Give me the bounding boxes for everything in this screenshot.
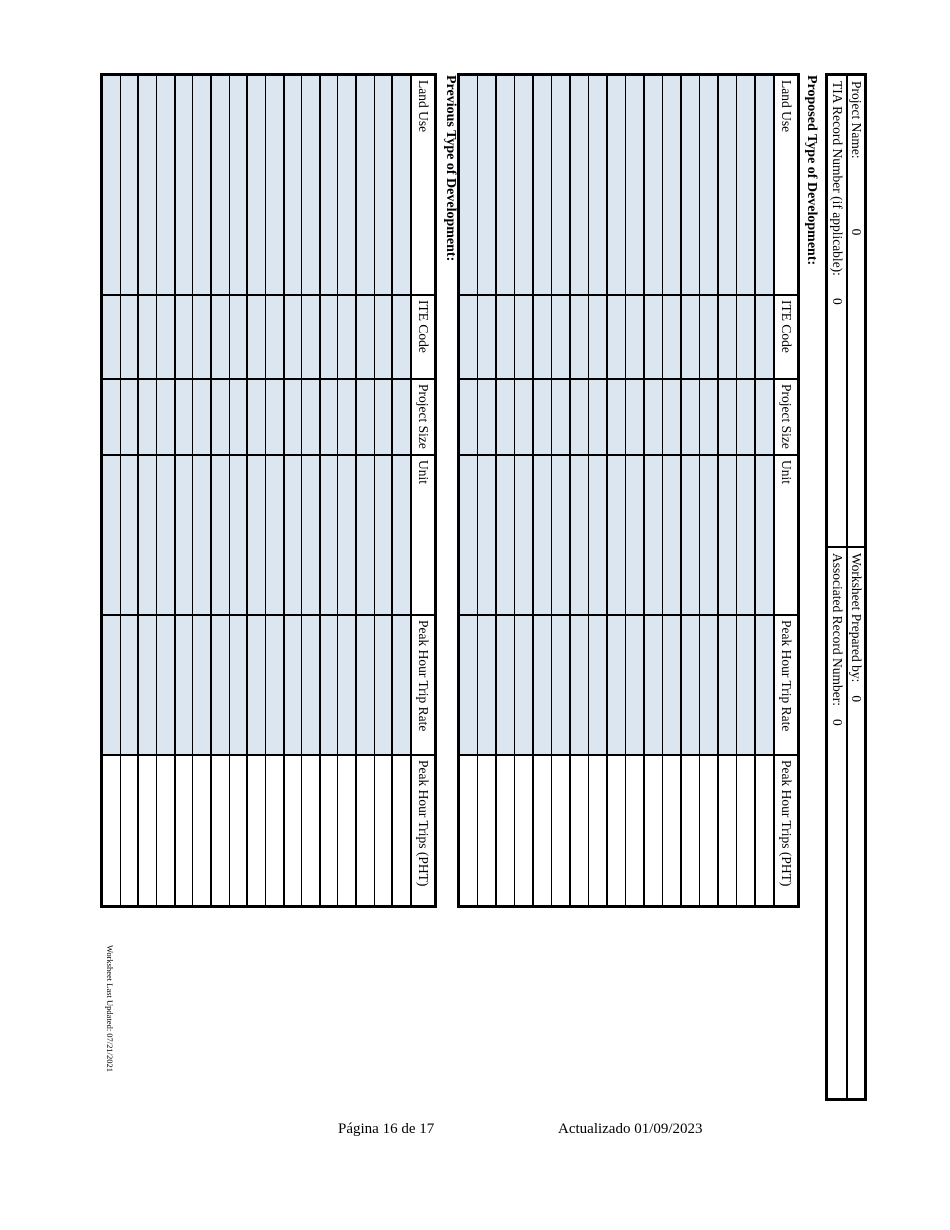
empty-data-cell (626, 380, 643, 456)
table-row (477, 76, 495, 905)
worksheet-prepared-by-label: Worksheet Prepared by: (848, 553, 864, 682)
empty-data-cell (515, 296, 532, 380)
empty-data-cell (478, 76, 495, 296)
table-row (192, 76, 210, 905)
empty-data-cell (534, 380, 551, 456)
empty-data-cell (497, 296, 514, 380)
empty-data-cell (157, 76, 174, 296)
empty-data-cell (608, 456, 625, 616)
empty-data-cell (121, 380, 138, 456)
empty-data-cell (230, 380, 247, 456)
column-header-project-size: Project Size (775, 380, 797, 456)
empty-data-cell (248, 456, 265, 616)
empty-data-cell (321, 76, 338, 296)
empty-data-cell (589, 616, 606, 756)
table-row (229, 76, 247, 905)
empty-data-cell (645, 296, 662, 380)
empty-data-cell (176, 756, 193, 905)
empty-data-cell (460, 616, 477, 756)
page-number-footer: Página 16 de 17 (338, 1121, 434, 1138)
empty-data-cell (212, 616, 229, 756)
empty-data-cell (700, 296, 717, 380)
empty-data-cell (157, 616, 174, 756)
empty-data-cell (663, 296, 680, 380)
empty-data-cell (103, 616, 120, 756)
empty-data-cell (756, 380, 773, 456)
empty-data-cell (478, 456, 495, 616)
empty-data-cell (571, 76, 588, 296)
empty-data-cell (756, 616, 773, 756)
empty-data-cell (121, 296, 138, 380)
table-row (174, 76, 193, 905)
empty-data-cell (230, 456, 247, 616)
empty-data-cell (193, 456, 210, 616)
empty-data-cell (103, 296, 120, 380)
empty-data-cell (212, 380, 229, 456)
empty-data-cell (589, 76, 606, 296)
empty-data-cell (176, 456, 193, 616)
column-header-land-use: Land Use (412, 76, 434, 296)
proposed-development-table: Land UseITE CodeProject SizeUnitPeak Hou… (457, 73, 800, 908)
empty-data-cell (248, 76, 265, 296)
empty-data-cell (338, 756, 355, 905)
empty-data-cell (266, 380, 283, 456)
empty-data-cell (719, 756, 736, 905)
empty-data-cell (700, 76, 717, 296)
empty-data-cell (682, 756, 699, 905)
previous-table-rows (103, 76, 410, 905)
associated-record-number-label: Associated Record Number: (829, 553, 845, 706)
empty-data-cell (285, 756, 302, 905)
empty-data-cell (193, 380, 210, 456)
empty-data-cell (515, 616, 532, 756)
table-row (319, 76, 338, 905)
worksheet-prepared-by-value: 0 (848, 695, 864, 702)
table-row (662, 76, 680, 905)
empty-data-cell (719, 616, 736, 756)
empty-data-cell (478, 756, 495, 905)
table-row (374, 76, 392, 905)
empty-data-cell (393, 76, 410, 296)
tia-record-number-value: 0 (829, 298, 845, 305)
empty-data-cell (515, 380, 532, 456)
worksheet-prepared-by-cell: Worksheet Prepared by: 0 (846, 548, 864, 1098)
empty-data-cell (478, 296, 495, 380)
empty-data-cell (608, 296, 625, 380)
column-header-peak-hour-trips-pht: Peak Hour Trips (PHT) (775, 756, 797, 905)
empty-data-cell (193, 296, 210, 380)
empty-data-cell (589, 296, 606, 380)
empty-data-cell (682, 616, 699, 756)
table-row (625, 76, 643, 905)
empty-data-cell (645, 456, 662, 616)
empty-data-cell (682, 380, 699, 456)
empty-data-cell (645, 756, 662, 905)
empty-data-cell (719, 76, 736, 296)
empty-data-cell (302, 76, 319, 296)
empty-data-cell (682, 76, 699, 296)
empty-data-cell (248, 756, 265, 905)
previous-column-header-row: Land UseITE CodeProject SizeUnitPeak Hou… (410, 76, 434, 905)
empty-data-cell (756, 76, 773, 296)
previous-section-heading: Previous Type of Development: (442, 75, 458, 261)
empty-data-cell (700, 380, 717, 456)
associated-record-number-value: 0 (829, 719, 845, 726)
column-header-ite-code: ITE Code (412, 296, 434, 380)
empty-data-cell (682, 296, 699, 380)
empty-data-cell (139, 76, 156, 296)
table-row (337, 76, 355, 905)
empty-data-cell (663, 76, 680, 296)
empty-data-cell (248, 380, 265, 456)
empty-data-cell (756, 456, 773, 616)
empty-data-cell (230, 756, 247, 905)
project-name-label: Project Name: (848, 81, 864, 159)
empty-data-cell (375, 296, 392, 380)
empty-data-cell (552, 296, 569, 380)
empty-data-cell (393, 456, 410, 616)
empty-data-cell (176, 76, 193, 296)
empty-data-cell (375, 756, 392, 905)
table-row (265, 76, 283, 905)
empty-data-cell (663, 756, 680, 905)
empty-data-cell (534, 76, 551, 296)
table-row (137, 76, 156, 905)
empty-data-cell (321, 616, 338, 756)
empty-data-cell (212, 76, 229, 296)
empty-data-cell (266, 756, 283, 905)
table-row (514, 76, 532, 905)
empty-data-cell (737, 456, 754, 616)
empty-data-cell (589, 456, 606, 616)
empty-data-cell (139, 616, 156, 756)
empty-data-cell (375, 456, 392, 616)
empty-data-cell (663, 616, 680, 756)
empty-data-cell (285, 296, 302, 380)
empty-data-cell (103, 380, 120, 456)
table-row (606, 76, 625, 905)
empty-data-cell (626, 616, 643, 756)
table-row (103, 76, 120, 905)
empty-data-cell (321, 296, 338, 380)
table-row (736, 76, 754, 905)
empty-data-cell (497, 456, 514, 616)
empty-data-cell (375, 380, 392, 456)
empty-data-cell (266, 76, 283, 296)
empty-data-cell (756, 296, 773, 380)
empty-data-cell (460, 756, 477, 905)
empty-data-cell (571, 756, 588, 905)
column-header-peak-hour-trip-rate: Peak Hour Trip Rate (775, 616, 797, 756)
empty-data-cell (737, 616, 754, 756)
empty-data-cell (571, 380, 588, 456)
empty-data-cell (176, 616, 193, 756)
empty-data-cell (103, 456, 120, 616)
empty-data-cell (700, 456, 717, 616)
empty-data-cell (338, 616, 355, 756)
table-row (246, 76, 265, 905)
empty-data-cell (230, 76, 247, 296)
table-row (569, 76, 588, 905)
empty-data-cell (497, 76, 514, 296)
empty-data-cell (121, 616, 138, 756)
empty-data-cell (460, 456, 477, 616)
empty-data-cell (737, 380, 754, 456)
column-header-peak-hour-trips-pht: Peak Hour Trips (PHT) (412, 756, 434, 905)
table-row (680, 76, 699, 905)
column-header-unit: Unit (412, 456, 434, 616)
empty-data-cell (497, 616, 514, 756)
empty-data-cell (157, 296, 174, 380)
associated-record-number-cell: Associated Record Number: 0 (828, 548, 846, 1098)
empty-data-cell (357, 380, 374, 456)
empty-data-cell (608, 380, 625, 456)
empty-data-cell (338, 296, 355, 380)
previous-development-table: Land UseITE CodeProject SizeUnitPeak Hou… (100, 73, 437, 908)
empty-data-cell (357, 616, 374, 756)
table-row (301, 76, 319, 905)
empty-data-cell (121, 76, 138, 296)
empty-data-cell (589, 756, 606, 905)
empty-data-cell (682, 456, 699, 616)
empty-data-cell (534, 616, 551, 756)
column-header-peak-hour-trip-rate: Peak Hour Trip Rate (412, 616, 434, 756)
empty-data-cell (645, 616, 662, 756)
empty-data-cell (645, 76, 662, 296)
empty-data-cell (497, 380, 514, 456)
empty-data-cell (248, 296, 265, 380)
table-row (210, 76, 229, 905)
empty-data-cell (515, 456, 532, 616)
table-row (283, 76, 302, 905)
empty-data-cell (478, 616, 495, 756)
empty-data-cell (230, 616, 247, 756)
empty-data-cell (302, 616, 319, 756)
empty-data-cell (139, 756, 156, 905)
empty-data-cell (497, 756, 514, 905)
empty-data-cell (552, 76, 569, 296)
empty-data-cell (357, 76, 374, 296)
table-row (717, 76, 736, 905)
empty-data-cell (302, 296, 319, 380)
empty-data-cell (515, 76, 532, 296)
tia-record-number-cell: TIA Record Number (if applicable): 0 (828, 76, 846, 548)
empty-data-cell (608, 756, 625, 905)
empty-data-cell (338, 456, 355, 616)
empty-data-cell (534, 756, 551, 905)
empty-data-cell (737, 756, 754, 905)
empty-data-cell (700, 756, 717, 905)
empty-data-cell (230, 296, 247, 380)
empty-data-cell (626, 76, 643, 296)
empty-data-cell (460, 76, 477, 296)
empty-data-cell (157, 456, 174, 616)
empty-data-cell (534, 456, 551, 616)
empty-data-cell (193, 756, 210, 905)
empty-data-cell (552, 380, 569, 456)
column-header-ite-code: ITE Code (775, 296, 797, 380)
empty-data-cell (393, 756, 410, 905)
empty-data-cell (571, 616, 588, 756)
empty-data-cell (176, 380, 193, 456)
project-name-value: 0 (848, 229, 864, 236)
empty-data-cell (338, 380, 355, 456)
empty-data-cell (393, 380, 410, 456)
empty-data-cell (534, 296, 551, 380)
empty-data-cell (139, 296, 156, 380)
column-header-project-size: Project Size (412, 380, 434, 456)
table-row (355, 76, 374, 905)
empty-data-cell (393, 296, 410, 380)
empty-data-cell (193, 76, 210, 296)
table-row (754, 76, 773, 905)
empty-data-cell (571, 456, 588, 616)
updated-date-footer: Actualizado 01/09/2023 (558, 1121, 703, 1138)
proposed-column-header-row: Land UseITE CodeProject SizeUnitPeak Hou… (773, 76, 797, 905)
empty-data-cell (663, 456, 680, 616)
empty-data-cell (212, 756, 229, 905)
empty-data-cell (552, 616, 569, 756)
empty-data-cell (608, 76, 625, 296)
header-info-table: Project Name: 0 Worksheet Prepared by: 0… (825, 73, 867, 1101)
empty-data-cell (375, 76, 392, 296)
empty-data-cell (176, 296, 193, 380)
empty-data-cell (139, 456, 156, 616)
table-row (495, 76, 514, 905)
empty-data-cell (139, 380, 156, 456)
empty-data-cell (338, 76, 355, 296)
table-row (120, 76, 138, 905)
empty-data-cell (626, 456, 643, 616)
worksheet-last-updated-note: Worksheet Last Updated: 07/21/2021 (105, 945, 115, 1072)
empty-data-cell (121, 456, 138, 616)
table-row (551, 76, 569, 905)
empty-data-cell (357, 756, 374, 905)
empty-data-cell (321, 756, 338, 905)
table-row (156, 76, 174, 905)
empty-data-cell (321, 456, 338, 616)
table-row (391, 76, 410, 905)
empty-data-cell (357, 456, 374, 616)
empty-data-cell (552, 756, 569, 905)
empty-data-cell (571, 296, 588, 380)
empty-data-cell (700, 616, 717, 756)
empty-data-cell (719, 380, 736, 456)
empty-data-cell (103, 76, 120, 296)
empty-data-cell (737, 76, 754, 296)
empty-data-cell (393, 616, 410, 756)
empty-data-cell (302, 456, 319, 616)
empty-data-cell (645, 380, 662, 456)
empty-data-cell (103, 756, 120, 905)
empty-data-cell (266, 296, 283, 380)
empty-data-cell (460, 380, 477, 456)
empty-data-cell (157, 756, 174, 905)
empty-data-cell (719, 296, 736, 380)
empty-data-cell (626, 296, 643, 380)
empty-data-cell (212, 296, 229, 380)
empty-data-cell (212, 456, 229, 616)
empty-data-cell (121, 756, 138, 905)
empty-data-cell (285, 380, 302, 456)
table-row (460, 76, 477, 905)
column-header-land-use: Land Use (775, 76, 797, 296)
empty-data-cell (285, 456, 302, 616)
empty-data-cell (460, 296, 477, 380)
empty-data-cell (302, 380, 319, 456)
proposed-section-heading: Proposed Type of Development: (803, 75, 819, 265)
empty-data-cell (285, 76, 302, 296)
empty-data-cell (608, 616, 625, 756)
document-page: Project Name: 0 Worksheet Prepared by: 0… (0, 0, 950, 1230)
project-name-cell: Project Name: 0 (846, 76, 864, 548)
empty-data-cell (266, 616, 283, 756)
table-row (532, 76, 551, 905)
empty-data-cell (719, 456, 736, 616)
table-row (699, 76, 717, 905)
empty-data-cell (478, 380, 495, 456)
empty-data-cell (756, 756, 773, 905)
empty-data-cell (515, 756, 532, 905)
column-header-unit: Unit (775, 456, 797, 616)
empty-data-cell (321, 380, 338, 456)
empty-data-cell (266, 456, 283, 616)
empty-data-cell (663, 380, 680, 456)
empty-data-cell (552, 456, 569, 616)
empty-data-cell (157, 380, 174, 456)
empty-data-cell (357, 296, 374, 380)
empty-data-cell (193, 616, 210, 756)
table-row (588, 76, 606, 905)
empty-data-cell (626, 756, 643, 905)
empty-data-cell (375, 616, 392, 756)
empty-data-cell (285, 616, 302, 756)
proposed-table-rows (460, 76, 773, 905)
table-row (643, 76, 662, 905)
rotated-worksheet: Project Name: 0 Worksheet Prepared by: 0… (0, 0, 950, 1230)
tia-record-number-label: TIA Record Number (if applicable): (829, 81, 845, 276)
empty-data-cell (302, 756, 319, 905)
empty-data-cell (248, 616, 265, 756)
empty-data-cell (737, 296, 754, 380)
empty-data-cell (589, 380, 606, 456)
